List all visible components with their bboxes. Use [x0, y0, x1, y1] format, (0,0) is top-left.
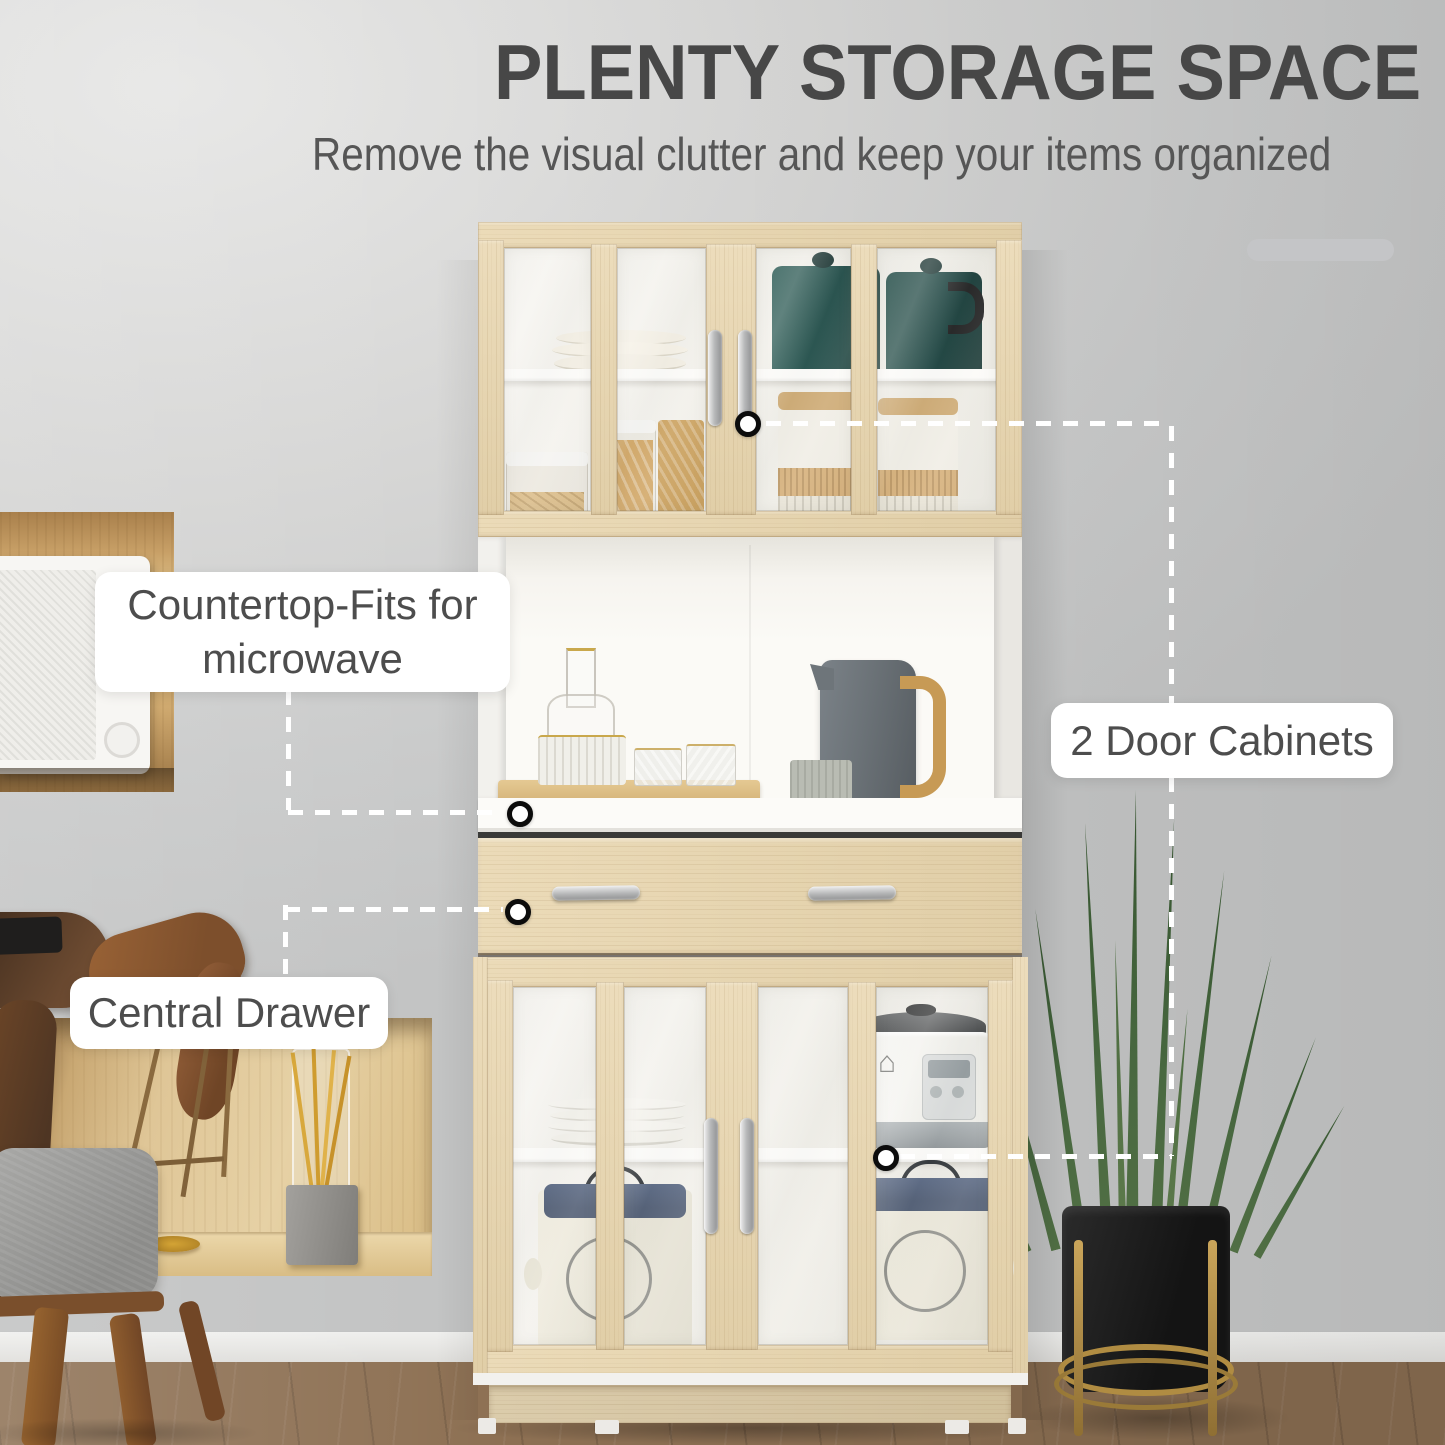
- page-title: PLENTY STORAGE SPACE: [494, 32, 1421, 112]
- header: PLENTY STORAGE SPACE Remove the visual c…: [0, 0, 1445, 1445]
- page-subtitle: Remove the visual clutter and keep your …: [312, 128, 1331, 180]
- product-infographic: ⌂: [0, 0, 1445, 1445]
